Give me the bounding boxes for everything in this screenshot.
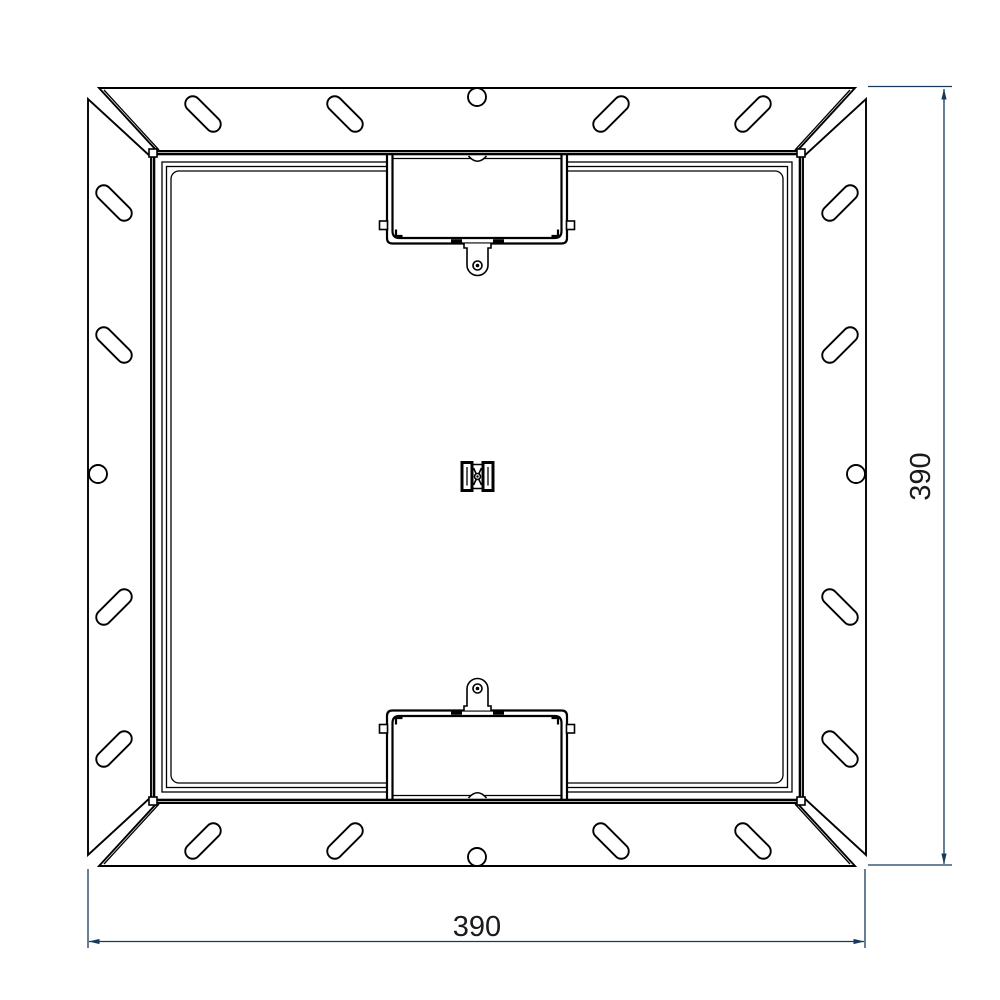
dimension-height: 390 — [868, 87, 952, 866]
flange-bottom — [99, 803, 855, 866]
drawing-canvas: 390 390 — [0, 0, 1000, 1000]
pocket-top-nub-right — [567, 221, 575, 230]
height-dimension-label: 390 — [905, 452, 937, 500]
pocket-bottom-nub-right — [567, 725, 575, 734]
pocket-bottom — [380, 679, 575, 801]
center-hinge-clip — [462, 463, 493, 491]
dimension-width: 390 — [88, 869, 865, 948]
frame-technical-drawing: 390 390 — [0, 0, 1000, 1000]
width-dimension-label: 390 — [453, 911, 501, 943]
pocket-top — [380, 154, 575, 276]
pocket-bottom-outer-wall — [387, 711, 567, 801]
arrowhead-right — [854, 939, 865, 944]
flange-right — [803, 99, 866, 855]
flange-top — [99, 88, 855, 151]
arrowhead-down — [941, 854, 946, 865]
flange-left — [88, 99, 151, 855]
pocket-bottom-nub-left — [380, 725, 388, 734]
pocket-top-nub-left — [380, 221, 388, 230]
arrowhead-up — [941, 89, 946, 100]
pocket-top-outer-wall — [387, 154, 567, 244]
arrowhead-left — [89, 939, 100, 944]
